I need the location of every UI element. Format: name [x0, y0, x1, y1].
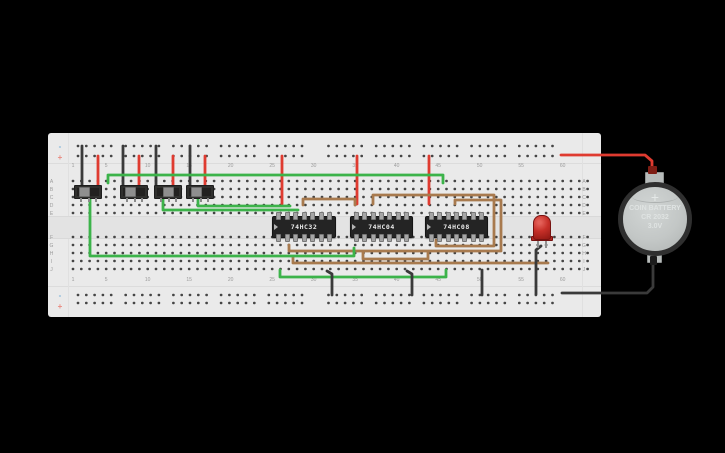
ic-pin [462, 212, 467, 220]
battery-model: CR 2032 [612, 214, 698, 221]
ic-pin [371, 212, 376, 220]
led-dome [533, 215, 551, 240]
ic-label: 74HC32 [273, 223, 335, 231]
ic-74hc04[interactable]: 74HC04 [350, 216, 413, 238]
ic-pin [276, 234, 281, 242]
battery-positive-connector [648, 166, 657, 174]
ic-pin [471, 234, 476, 242]
ic-pin [387, 212, 392, 220]
ic-pin [429, 212, 434, 220]
switch-pin [95, 198, 97, 202]
ic-label: 74HC08 [426, 223, 487, 231]
switch-pin [168, 198, 170, 202]
ic-pin [379, 212, 384, 220]
ic-pin [362, 234, 367, 242]
switch-pin [141, 198, 143, 202]
ic-pin [354, 212, 359, 220]
ic-pin [293, 212, 298, 220]
led-cathode-leg [537, 240, 539, 248]
ic-pin [327, 234, 332, 242]
led-anode-leg [545, 240, 547, 248]
ic-pin [454, 234, 459, 242]
ic-74hc32[interactable]: 74HC32 [272, 216, 336, 238]
components-layer: + COIN BATTERY CR 2032 3.0V 74HC3274HC04… [0, 0, 725, 453]
ic-pin [437, 212, 442, 220]
switch-pin [88, 198, 90, 202]
ic-pin [310, 212, 315, 220]
slide-switch-2[interactable] [120, 185, 148, 199]
ic-pin [310, 234, 315, 242]
ic-pin [454, 212, 459, 220]
switch-knob[interactable] [125, 187, 136, 197]
ic-pin [404, 234, 409, 242]
switch-knob[interactable] [163, 187, 174, 197]
switch-pin [192, 198, 194, 202]
ic-pin [387, 234, 392, 242]
switch-pin [200, 198, 202, 202]
switch-pin [126, 198, 128, 202]
ic-pin [327, 212, 332, 220]
ic-pin [479, 234, 484, 242]
ic-pin [302, 234, 307, 242]
battery-voltage: 3.0V [612, 223, 698, 230]
switch-knob[interactable] [191, 187, 202, 197]
switch-pin [80, 198, 82, 202]
slide-switch-4[interactable] [186, 185, 214, 199]
ic-pin [379, 234, 384, 242]
ic-pin [446, 234, 451, 242]
ic-pin [446, 212, 451, 220]
switch-pin [175, 198, 177, 202]
battery-name: COIN BATTERY [612, 205, 698, 212]
ic-pin [396, 234, 401, 242]
ic-pin [362, 212, 367, 220]
ic-pin [462, 234, 467, 242]
coin-battery[interactable]: + COIN BATTERY CR 2032 3.0V [618, 182, 692, 256]
ic-pin [371, 234, 376, 242]
ic-pin [285, 234, 290, 242]
ic-pin [479, 212, 484, 220]
ic-pin [276, 212, 281, 220]
ic-pin [396, 212, 401, 220]
red-led[interactable] [531, 214, 553, 248]
ic-pin [354, 234, 359, 242]
slide-switch-1[interactable] [74, 185, 102, 199]
ic-pin [293, 234, 298, 242]
ic-label: 74HC04 [351, 223, 412, 231]
circuit-canvas: -+-+115510101515202025253030353540404545… [0, 0, 725, 453]
ic-pin [437, 234, 442, 242]
ic-pin [319, 234, 324, 242]
switch-knob[interactable] [79, 187, 90, 197]
ic-pin [471, 212, 476, 220]
slide-switch-3[interactable] [154, 185, 182, 199]
ic-pin [302, 212, 307, 220]
ic-pin [285, 212, 290, 220]
ic-74hc08[interactable]: 74HC08 [425, 216, 488, 238]
ic-pin [429, 234, 434, 242]
battery-negative-connector [650, 256, 657, 265]
switch-pin [134, 198, 136, 202]
battery-plus-sign: + [618, 189, 692, 205]
ic-pin [404, 212, 409, 220]
ic-pin [319, 212, 324, 220]
switch-pin [207, 198, 209, 202]
switch-pin [160, 198, 162, 202]
